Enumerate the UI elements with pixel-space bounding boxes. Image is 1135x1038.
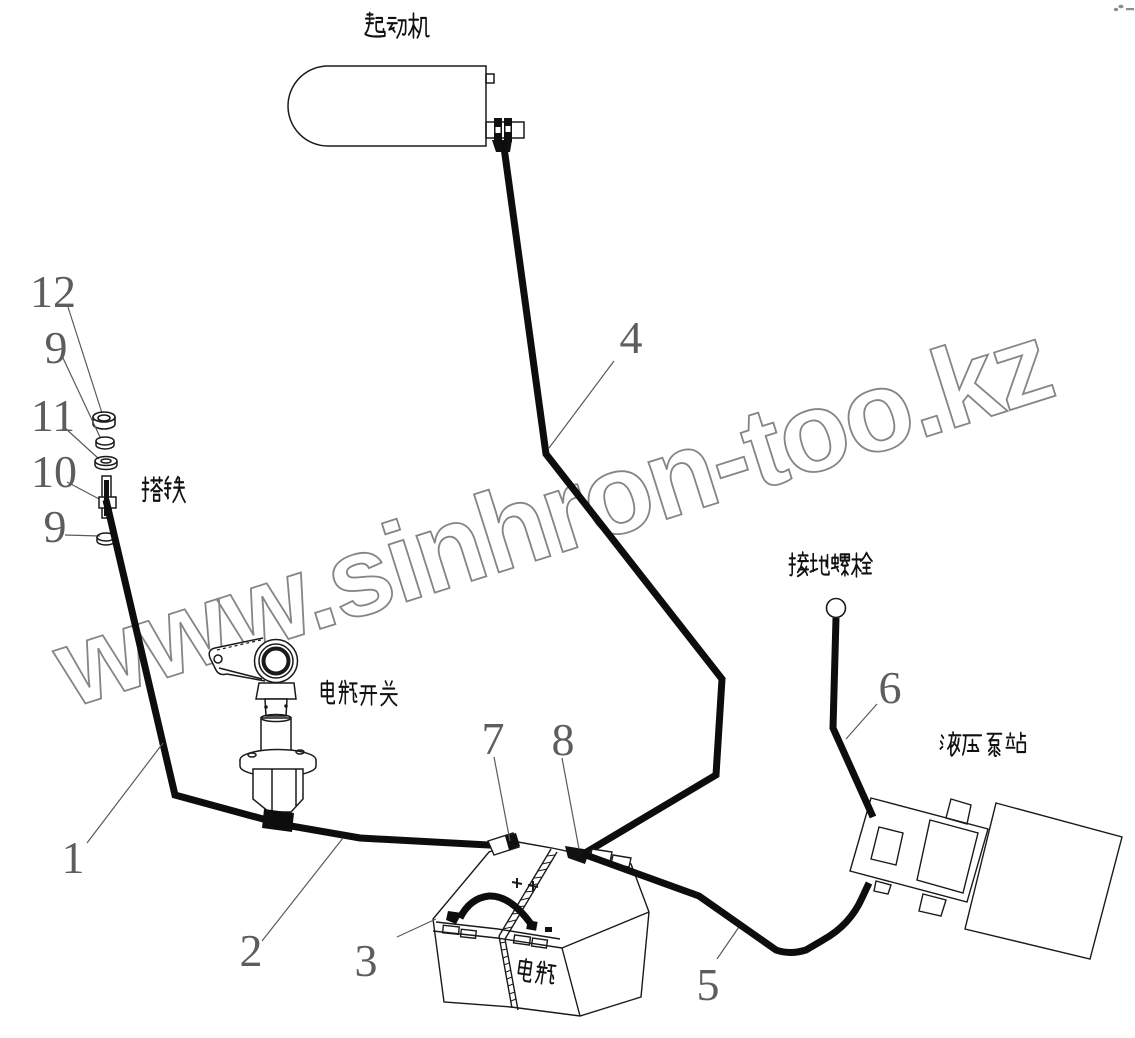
svg-text:10: 10 bbox=[31, 446, 77, 497]
svg-text:7: 7 bbox=[482, 713, 505, 764]
svg-text:3: 3 bbox=[355, 935, 378, 986]
svg-text:9: 9 bbox=[45, 322, 68, 373]
svg-text:11: 11 bbox=[31, 390, 75, 441]
svg-text:6: 6 bbox=[879, 662, 902, 713]
svg-text:9: 9 bbox=[44, 501, 67, 552]
svg-text:5: 5 bbox=[697, 959, 720, 1010]
svg-text:1: 1 bbox=[62, 832, 85, 883]
svg-text:8: 8 bbox=[552, 714, 575, 765]
svg-text:2: 2 bbox=[240, 925, 263, 976]
svg-text:4: 4 bbox=[620, 312, 643, 363]
